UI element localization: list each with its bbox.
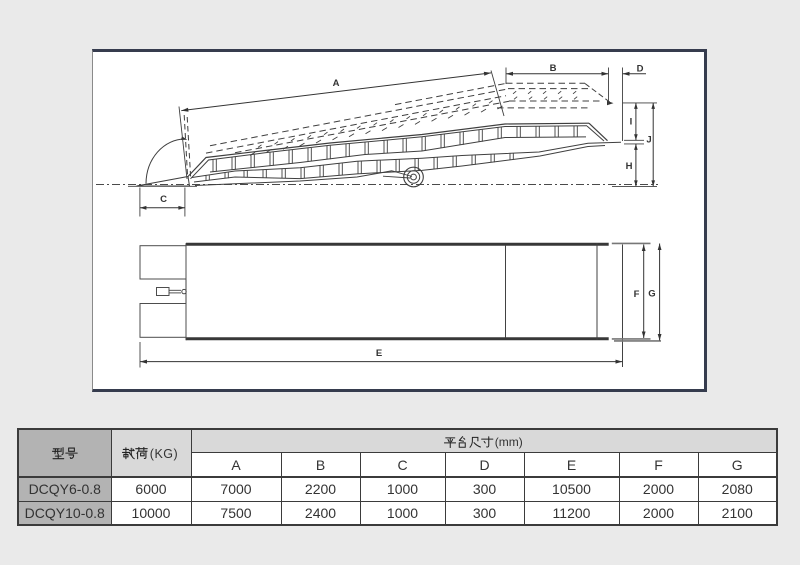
svg-text:F: F xyxy=(634,289,640,300)
svg-text:J: J xyxy=(646,134,651,145)
svg-text:E: E xyxy=(376,348,382,359)
svg-text:I: I xyxy=(630,116,633,127)
svg-text:H: H xyxy=(626,161,633,172)
svg-text:A: A xyxy=(333,78,340,89)
svg-text:C: C xyxy=(160,194,167,205)
svg-text:G: G xyxy=(648,289,655,300)
svg-text:D: D xyxy=(637,64,644,75)
svg-text:B: B xyxy=(550,63,557,74)
